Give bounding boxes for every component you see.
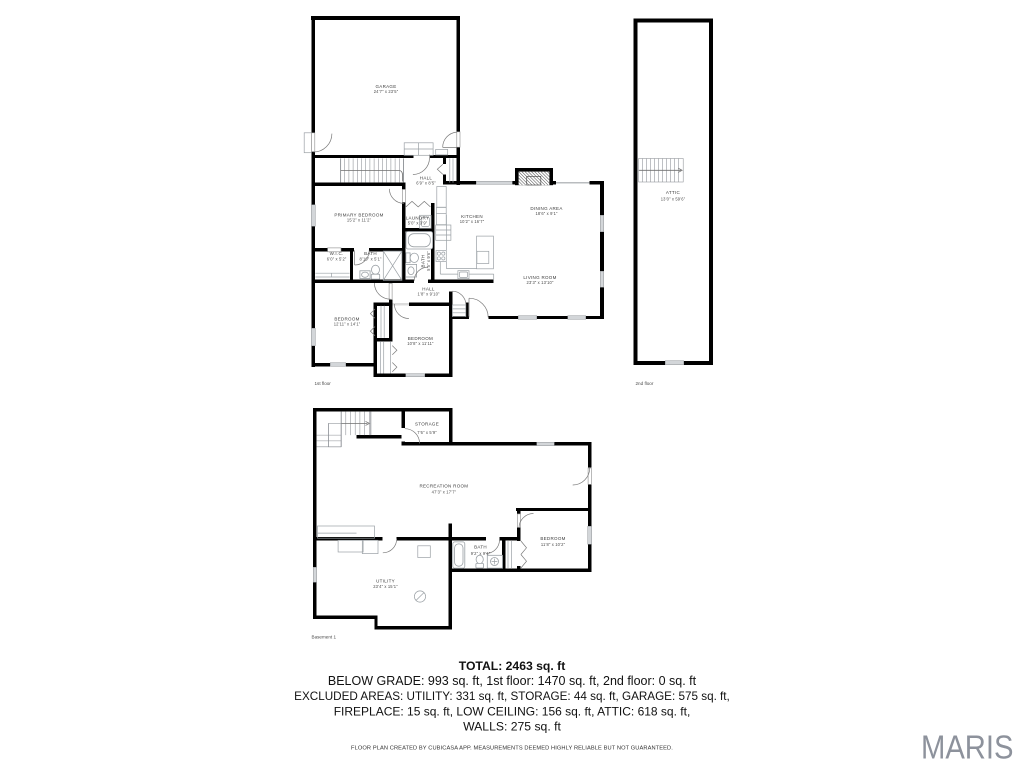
svg-text:1’8” x 9’10”: 1’8” x 9’10”: [417, 291, 440, 296]
svg-text:MARIS: MARIS: [921, 729, 1014, 766]
svg-text:47’3” x 17’7”: 47’3” x 17’7”: [432, 489, 457, 494]
svg-text:6’9” x 8’5”: 6’9” x 8’5”: [416, 180, 436, 185]
svg-text:5’0” x 3’9”: 5’0” x 3’9”: [408, 220, 428, 225]
svg-text:12’11” x 14’1”: 12’11” x 14’1”: [334, 321, 361, 326]
svg-text:TOTAL: 2463 sq. ft: TOTAL: 2463 sq. ft: [459, 659, 566, 673]
svg-text:24’7” x 23’5”: 24’7” x 23’5”: [374, 89, 399, 94]
svg-text:7’6” x 5’9”: 7’6” x 5’9”: [417, 430, 437, 435]
svg-text:6’0” x 5’2”: 6’0” x 5’2”: [327, 257, 347, 262]
svg-text:ATTIC: ATTIC: [666, 190, 681, 195]
svg-text:11’8” x 10’2”: 11’8” x 10’2”: [541, 542, 566, 547]
svg-text:1st floor: 1st floor: [315, 381, 332, 386]
svg-text:BATH: BATH: [364, 251, 377, 256]
svg-text:2nd floor: 2nd floor: [636, 381, 654, 386]
svg-text:10’2” x 16’7”: 10’2” x 16’7”: [460, 219, 485, 224]
svg-text:FLOOR PLAN CREATED BY CUBICASA: FLOOR PLAN CREATED BY CUBICASA APP. MEAS…: [351, 745, 673, 751]
svg-text:RECREATION ROOM: RECREATION ROOM: [419, 483, 468, 488]
svg-text:BELOW GRADE: 993 sq. ft, 1st f: BELOW GRADE: 993 sq. ft, 1st floor: 1470…: [328, 674, 697, 688]
svg-text:UTILITY: UTILITY: [376, 578, 395, 583]
svg-text:BATH: BATH: [474, 544, 487, 549]
svg-text:10’8” x 11’11”: 10’8” x 11’11”: [407, 341, 434, 346]
svg-text:Basement 1: Basement 1: [312, 634, 337, 639]
svg-text:W.I.C.: W.I.C.: [330, 251, 344, 256]
svg-text:EXCLUDED AREAS: UTILITY: 331 s: EXCLUDED AREAS: UTILITY: 331 sq. ft, STO…: [294, 690, 730, 703]
svg-text:STORAGE: STORAGE: [415, 421, 439, 426]
svg-text:13’0” x 59’6”: 13’0” x 59’6”: [661, 197, 686, 202]
svg-text:BATH: BATH: [421, 255, 426, 268]
svg-text:18’6” x 9’1”: 18’6” x 9’1”: [535, 211, 558, 216]
svg-text:5’5” x 9’6”: 5’5” x 9’6”: [426, 251, 431, 271]
svg-text:BEDROOM: BEDROOM: [540, 536, 565, 541]
svg-text:15’2” x 11’2”: 15’2” x 11’2”: [347, 218, 372, 223]
svg-text:23’4” x 15’1”: 23’4” x 15’1”: [373, 584, 398, 589]
svg-text:8’10” x 5’1”: 8’10” x 5’1”: [359, 257, 382, 262]
svg-text:23’3” x 13’10”: 23’3” x 13’10”: [527, 280, 554, 285]
svg-text:FIREPLACE: 15 sq. ft, LOW CEIL: FIREPLACE: 15 sq. ft, LOW CEILING: 156 s…: [334, 704, 691, 718]
svg-text:9’2” x 9’1”: 9’2” x 9’1”: [471, 551, 491, 556]
svg-text:WALLS: 275 sq. ft: WALLS: 275 sq. ft: [463, 719, 561, 733]
